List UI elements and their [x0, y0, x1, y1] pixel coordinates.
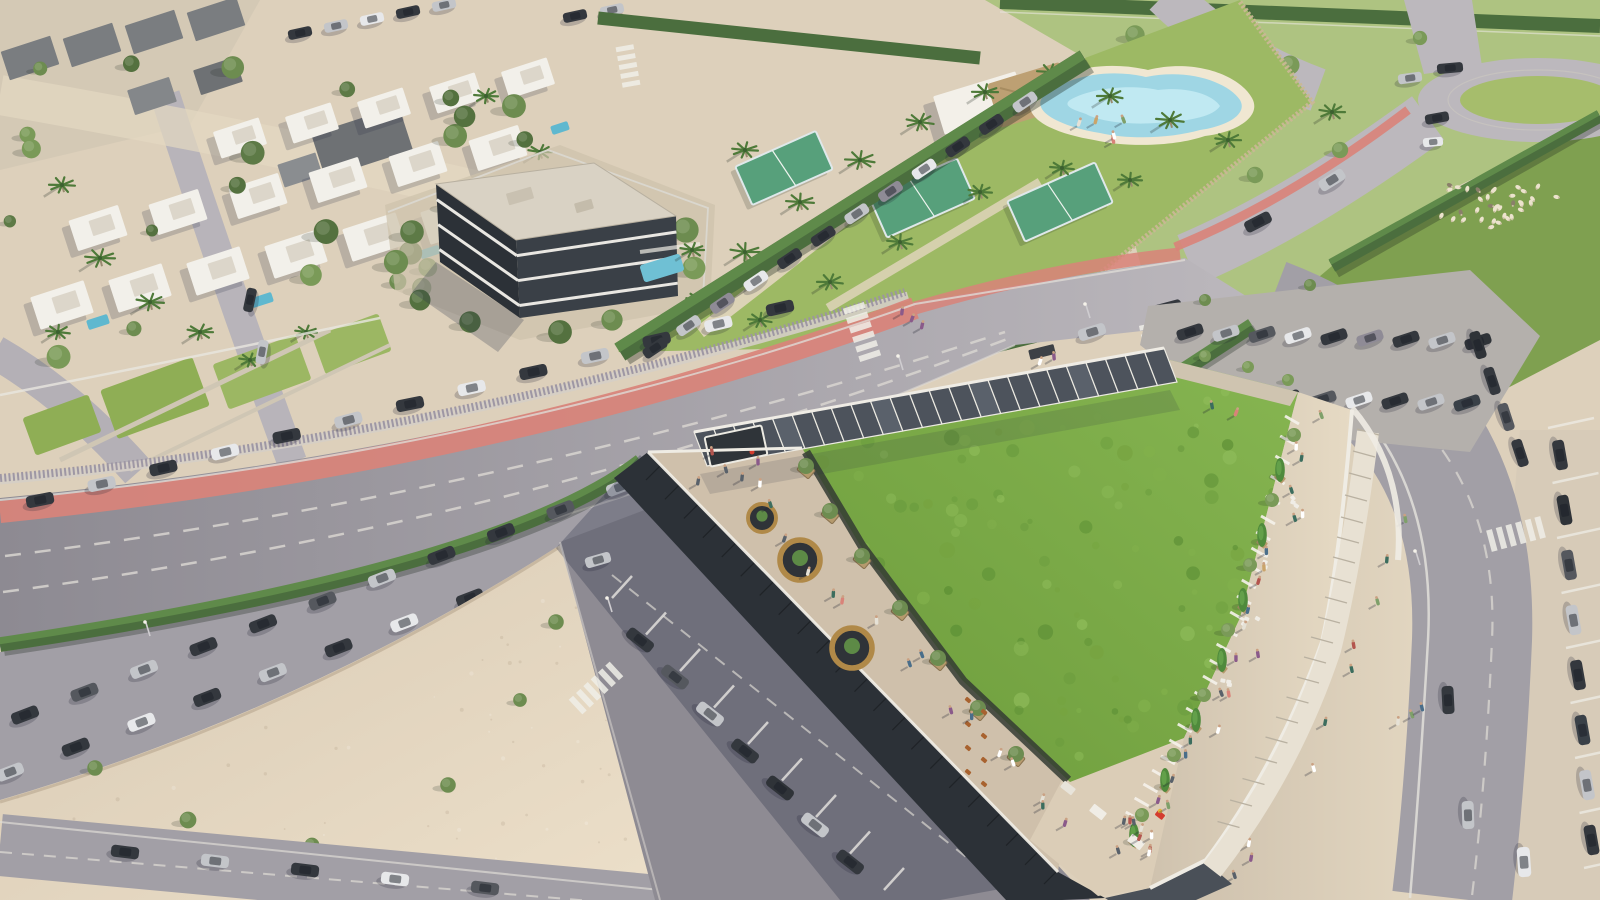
timber-pod	[780, 540, 820, 580]
aerial-render-canvas	[0, 0, 1600, 900]
aerial-render	[0, 0, 1600, 900]
timber-pod	[748, 504, 776, 532]
timber-pod	[832, 628, 872, 668]
cafe-table	[1226, 680, 1232, 685]
